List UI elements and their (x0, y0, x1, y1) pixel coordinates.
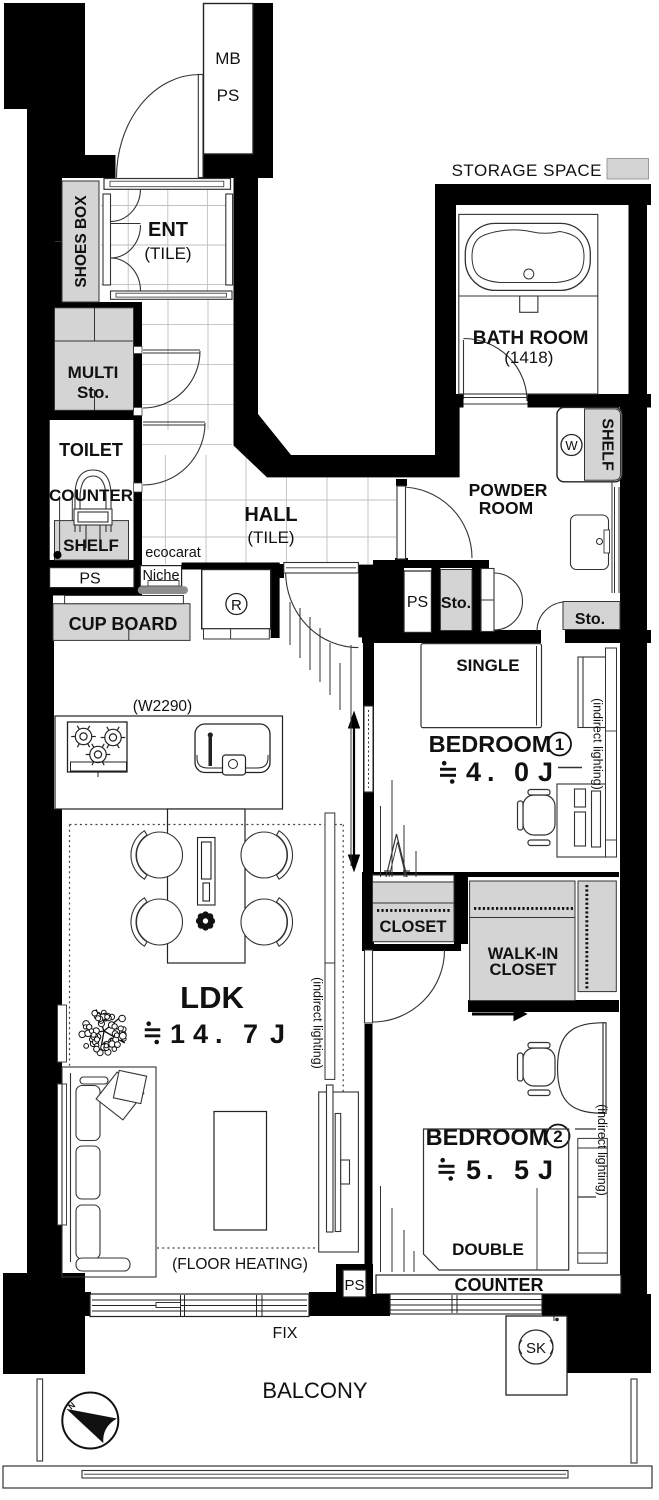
svg-text:COUNTER: COUNTER (49, 486, 133, 505)
svg-text:STORAGE SPACE: STORAGE SPACE (452, 161, 602, 180)
svg-text:2: 2 (553, 1127, 562, 1146)
svg-text:(1418): (1418) (504, 348, 553, 367)
svg-text:CLOSET: CLOSET (490, 961, 557, 979)
svg-text:CUP BOARD: CUP BOARD (69, 614, 178, 634)
svg-text:(TILE): (TILE) (247, 528, 294, 547)
svg-text:Sto.: Sto. (575, 611, 605, 628)
svg-text:BALCONY: BALCONY (262, 1378, 367, 1403)
svg-text:SHOES BOX: SHOES BOX (73, 195, 90, 288)
svg-text:MB: MB (215, 49, 241, 68)
svg-text:ecocarat: ecocarat (145, 545, 201, 561)
svg-text:PS: PS (79, 571, 100, 588)
svg-text:W: W (565, 438, 578, 453)
svg-text:(indirect lighting): (indirect lighting) (595, 1104, 609, 1196)
svg-text:Sto.: Sto. (441, 595, 471, 612)
svg-text:Sto.: Sto. (77, 383, 109, 402)
svg-text:(indirect lighting): (indirect lighting) (591, 698, 605, 790)
svg-text:PS: PS (344, 1277, 364, 1294)
svg-text:ROOM: ROOM (479, 498, 533, 518)
svg-text:Niche: Niche (142, 568, 179, 584)
svg-text:(FLOOR HEATING): (FLOOR HEATING) (172, 1256, 308, 1273)
svg-text:COUNTER: COUNTER (455, 1275, 544, 1295)
svg-text:PS: PS (407, 594, 428, 611)
svg-text:R: R (231, 597, 242, 614)
svg-text:BEDROOM: BEDROOM (426, 1124, 549, 1150)
svg-text:POWDER: POWDER (469, 480, 548, 500)
svg-text:SK: SK (526, 1340, 546, 1357)
svg-text:PS: PS (217, 86, 240, 105)
svg-text:ENT: ENT (148, 219, 188, 241)
svg-text:TOILET: TOILET (59, 440, 123, 460)
svg-text:SHELF: SHELF (63, 536, 119, 555)
svg-text:BATH ROOM: BATH ROOM (473, 328, 589, 349)
svg-text:MULTI: MULTI (68, 363, 119, 382)
svg-text:(TILE): (TILE) (144, 244, 191, 263)
svg-text:LDK: LDK (180, 980, 244, 1015)
svg-text:1: 1 (555, 735, 564, 754)
svg-text:HALL: HALL (244, 504, 297, 526)
svg-text:SHELF: SHELF (599, 418, 616, 471)
svg-text:DOUBLE: DOUBLE (452, 1240, 524, 1259)
svg-text:(indirect lighting): (indirect lighting) (311, 977, 325, 1069)
svg-text:FIX: FIX (273, 1325, 298, 1342)
svg-text:CLOSET: CLOSET (380, 918, 447, 936)
svg-text:(W2290): (W2290) (133, 698, 192, 715)
svg-text:BEDROOM: BEDROOM (429, 731, 552, 757)
svg-text:SINGLE: SINGLE (456, 656, 519, 675)
